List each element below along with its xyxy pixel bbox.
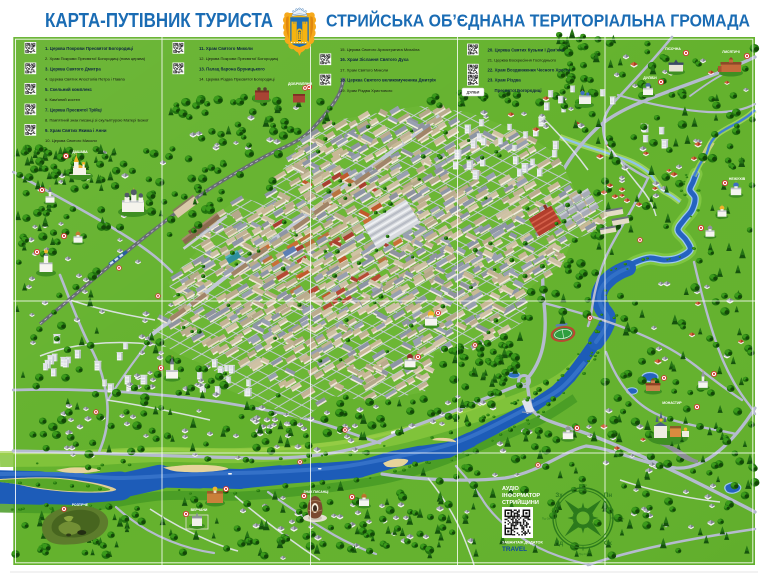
svg-text:Пн-Сх: Пн-Сх (616, 517, 625, 521)
svg-text:15. Церква Святого Архистратиг: 15. Церква Святого Архистратига Михаїла (340, 47, 420, 52)
svg-text:АУДІО: АУДІО (502, 486, 520, 492)
svg-text:TRAVEL: TRAVEL (502, 546, 527, 553)
svg-text:10. Церква Святого Миколи: 10. Церква Святого Миколи (45, 138, 97, 143)
svg-text:9. Храм Святих Якима і Анни: 9. Храм Святих Якима і Анни (45, 128, 107, 133)
svg-text:16. Храм Зіслання Святого Духа: 16. Храм Зіслання Святого Духа (340, 57, 409, 62)
svg-text:СТРИЙЩИНИ: СТРИЙЩИНИ (502, 498, 539, 506)
svg-text:5. Скельний комплекс: 5. Скельний комплекс (45, 87, 92, 92)
svg-text:ВЕРЧАНИ: ВЕРЧАНИ (191, 508, 208, 512)
svg-text:Пресвятої Богородиці: Пресвятої Богородиці (495, 88, 542, 93)
svg-text:ЛИСЯТИЧІ: ЛИСЯТИЧІ (722, 50, 740, 54)
svg-text:22. Храм Воздвиження Чесного Х: 22. Храм Воздвиження Чесного Хреста (488, 68, 571, 73)
svg-text:Пн-Зх: Пн-Зх (579, 483, 588, 487)
svg-text:ДУЛІБИ: ДУЛІБИ (643, 76, 657, 80)
svg-text:19. Храм Різдва Христового: 19. Храм Різдва Христового (340, 88, 393, 93)
svg-text:СТРИЙСЬКА ОБ’ЄДНАНА ТЕРИТОРІАЛ: СТРИЙСЬКА ОБ’ЄДНАНА ТЕРИТОРІАЛЬНА ГРОМАД… (326, 10, 750, 31)
svg-text:Пд-Сх: Пд-Сх (579, 552, 588, 556)
svg-text:12. Церква Покрови Пресвятої Б: 12. Церква Покрови Пресвятої Богородиці (199, 56, 278, 61)
svg-text:Пд: Пд (555, 540, 563, 547)
svg-text:23. Храм Різдва: 23. Храм Різдва (488, 78, 522, 83)
svg-text:ДУЛІБИ: ДУЛІБИ (467, 91, 480, 95)
svg-text:Пд-Зх: Пд-Зх (542, 517, 551, 521)
svg-text:МОНАСТИР: МОНАСТИР (662, 401, 682, 405)
svg-text:13. Палац барона Бруницького: 13. Палац барона Бруницького (199, 66, 265, 71)
svg-text:11. Храм Святого Миколи: 11. Храм Святого Миколи (199, 46, 253, 51)
svg-text:Сх: Сх (604, 540, 612, 547)
svg-text:ДАШАВА: ДАШАВА (72, 150, 88, 154)
svg-text:3. Церква Святого Дмитра: 3. Церква Святого Дмитра (45, 66, 101, 71)
svg-text:2. Храм Покрови Пресвятої Бого: 2. Храм Покрови Пресвятої Богородиці (но… (45, 56, 146, 61)
svg-text:1. Церква Покрови Пресвятої Бо: 1. Церква Покрови Пресвятої Богородиці (45, 46, 133, 51)
svg-text:14. Церква Різдва Пресвятої Бо: 14. Церква Різдва Пресвятої Богородиці (199, 77, 275, 82)
svg-text:ЗНАК ПИСАНЦІ: ЗНАК ПИСАНЦІ (304, 490, 329, 494)
svg-text:7. Церква Пресвятої Трійці: 7. Церква Пресвятої Трійці (45, 107, 102, 112)
svg-text:6. Кам'яний костел: 6. Кам'яний костел (45, 97, 81, 102)
svg-text:8. Пам'ятний знак писанці зі с: 8. Пам'ятний знак писанці зі скульптурою… (45, 118, 149, 123)
svg-text:ІНФОРМАТОР: ІНФОРМАТОР (502, 493, 540, 499)
svg-text:ДОБРІВЛЯНИ: ДОБРІВЛЯНИ (288, 82, 313, 86)
svg-text:4. Церква Святих Апостолів Пет: 4. Церква Святих Апостолів Петра і Павла (45, 77, 125, 82)
svg-text:КАРТА-ПУТІВНИК ТУРИСТА: КАРТА-ПУТІВНИК ТУРИСТА (45, 9, 273, 32)
svg-text:Зх: Зх (555, 492, 563, 499)
svg-text:ПІСОЧНА: ПІСОЧНА (665, 47, 681, 51)
svg-text:ЗАВАНТАЖ ДОДАТОК: ЗАВАНТАЖ ДОДАТОК (502, 541, 544, 545)
svg-text:20. Церква Святих Кузьми і Дем: 20. Церква Святих Кузьми і Дем'яна (488, 47, 565, 52)
svg-text:НЕЖУХІВ: НЕЖУХІВ (729, 177, 746, 181)
svg-text:21. Церква Воскресіння Господн: 21. Церква Воскресіння Господнього (488, 58, 557, 63)
svg-text:18. Церква Святого великомучен: 18. Церква Святого великомученика Дмитрі… (340, 78, 436, 83)
svg-text:Пн: Пн (604, 492, 612, 499)
svg-text:17. Храм Святого Миколи: 17. Храм Святого Миколи (340, 67, 388, 72)
svg-text:РОЗГІРЧЕ: РОЗГІРЧЕ (72, 503, 89, 507)
